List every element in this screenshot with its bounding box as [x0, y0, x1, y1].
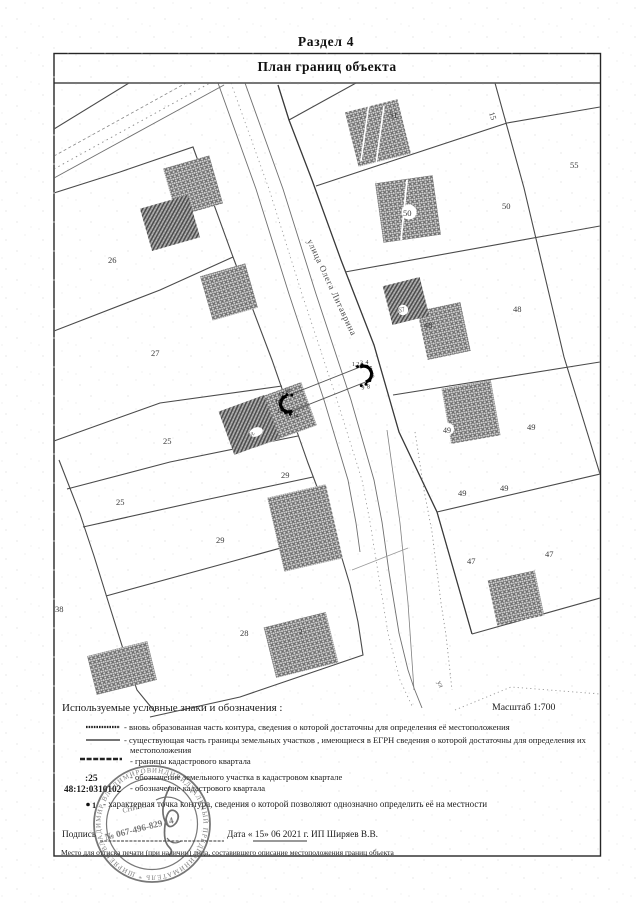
svg-text:- границы кадастрового квартал: - границы кадастрового квартала [130, 756, 251, 766]
svg-text:8: 8 [367, 385, 370, 391]
svg-text:4: 4 [366, 360, 369, 366]
svg-text:48: 48 [424, 320, 433, 330]
svg-text:49: 49 [458, 488, 467, 498]
svg-text:50: 50 [502, 201, 511, 211]
svg-text:6: 6 [372, 374, 375, 380]
svg-text:48: 48 [513, 304, 522, 314]
svg-text:2: 2 [299, 628, 303, 636]
svg-text:- вновь образованная часть кон: - вновь образованная часть контура, свед… [124, 722, 510, 732]
svg-text:27: 27 [151, 348, 160, 358]
svg-text:14: 14 [293, 414, 299, 420]
svg-text:5: 5 [370, 366, 373, 372]
svg-text:25: 25 [116, 497, 125, 507]
svg-text:- существующая часть границы з: - существующая часть границы земельных у… [124, 735, 587, 745]
svg-text:29: 29 [216, 535, 225, 545]
svg-text:15: 15 [277, 409, 283, 415]
svg-text:16: 16 [275, 400, 281, 406]
svg-text:13: 13 [286, 414, 292, 420]
svg-text:28: 28 [240, 628, 249, 638]
svg-text:Масштаб 1:700: Масштаб 1:700 [492, 702, 556, 713]
svg-text:3: 3 [360, 361, 363, 367]
svg-text:местоположения: местоположения [130, 745, 191, 755]
svg-text:1,2: 1,2 [352, 362, 359, 368]
svg-text:Подпись: Подпись [62, 830, 96, 840]
svg-text:49: 49 [527, 422, 536, 432]
svg-text:План границ объекта: План границ объекта [257, 59, 396, 74]
svg-text:47: 47 [545, 549, 554, 559]
svg-text:29: 29 [281, 470, 290, 480]
svg-text:49: 49 [500, 483, 509, 493]
svg-text:25: 25 [163, 436, 172, 446]
svg-text:Раздел 4: Раздел 4 [298, 34, 354, 49]
svg-text:- характерная точка контура, с: - характерная точка контура, сведения о … [103, 799, 487, 809]
svg-text:55: 55 [570, 160, 579, 170]
svg-text:18: 18 [285, 389, 291, 395]
svg-text:38: 38 [55, 604, 64, 614]
svg-text:Используемые условные знаки и: Используемые условные знаки и обозначени… [62, 702, 282, 714]
svg-text:26: 26 [108, 255, 117, 265]
svg-text::25: :25 [85, 774, 98, 784]
svg-text:50: 50 [403, 208, 412, 218]
svg-text:9: 9 [362, 386, 365, 392]
svg-text:Дата « 15» 06 2021 г. ИП: Дата « 15» 06 2021 г. ИП Ширяев В.В. [227, 830, 378, 840]
svg-text:47: 47 [467, 556, 476, 566]
svg-text:49: 49 [443, 426, 451, 435]
svg-text:51: 51 [389, 110, 398, 120]
svg-text:17: 17 [279, 393, 285, 399]
